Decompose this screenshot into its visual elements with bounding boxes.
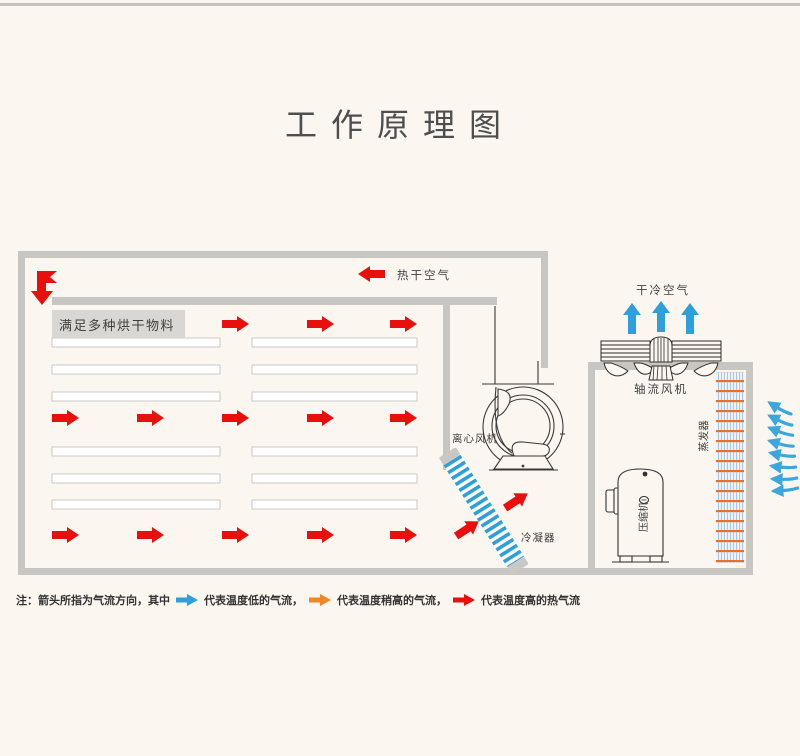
legend-note: 注：箭头所指为气流方向，其中	[16, 592, 170, 608]
hot-airflow-arrow-icon	[137, 410, 164, 426]
tray	[52, 365, 220, 374]
hot-airflow-arrow-icon	[222, 410, 249, 426]
cold-air-up-arrows	[623, 301, 699, 334]
wall-bottom	[18, 568, 753, 575]
intake-air-arrow-icon	[773, 469, 797, 489]
legend-hot-arrow-icon	[452, 594, 476, 606]
legend-cold-label: 代表温度低的气流，	[204, 592, 303, 608]
legend: 注：箭头所指为气流方向，其中 代表温度低的气流， 代表温度稍高的气流， 代表温度…	[16, 592, 580, 608]
tray	[252, 447, 417, 456]
hot-airflow-arrow-icon	[52, 410, 79, 426]
intake-air-arrow-icon	[772, 457, 796, 476]
schematic-page: 工作原理图	[0, 0, 800, 756]
tray	[52, 474, 220, 483]
tray	[52, 447, 220, 456]
wall-inner-vertical	[443, 297, 450, 470]
intake-air-arrow-icon	[770, 414, 792, 427]
wall-step-right	[541, 251, 548, 368]
tray	[252, 338, 417, 347]
tray	[52, 392, 220, 401]
hot-airflow-arrow-icon	[307, 527, 334, 543]
tray	[52, 500, 220, 509]
intake-air-arrow-icon	[774, 479, 798, 500]
hot-dry-air-label: 热干空气	[397, 268, 451, 282]
evaporator-coil	[716, 372, 744, 563]
centrifugal-fan-drawing	[482, 306, 565, 470]
dry-cold-air-label: 干冷空气	[636, 283, 690, 297]
tray	[252, 474, 417, 483]
condenser-label: 冷凝器	[521, 531, 556, 544]
legend-hot-label: 代表温度高的热气流	[481, 592, 580, 608]
cold-air-up-arrow-icon	[623, 303, 641, 334]
intake-air-arrow-icon	[770, 424, 793, 438]
tray	[252, 392, 417, 401]
condenser-outflow-arrow-icon	[501, 487, 532, 515]
wall-top	[18, 251, 548, 258]
axial-fan-drawing	[601, 337, 721, 380]
tray	[252, 365, 417, 374]
hot-dry-air-arrow-icon	[358, 266, 385, 282]
hot-airflow-arrow-icon	[390, 316, 417, 332]
intake-air-arrow-icon	[770, 403, 791, 414]
hot-airflow-arrow-icon	[307, 410, 334, 426]
axial-fan-label: 轴流风机	[634, 382, 688, 396]
tray	[252, 500, 417, 509]
legend-cold-arrow-icon	[175, 594, 199, 606]
hot-airflow-arrow-icon	[222, 316, 249, 332]
compressor-label: 压缩机	[637, 502, 650, 532]
hot-airflow-arrow-icon	[137, 527, 164, 543]
hot-airflow-arrow-icon	[52, 527, 79, 543]
wall-machineroom-right	[746, 362, 753, 568]
evaporator-label: 蒸发器	[697, 420, 710, 452]
intake-air-curved-arrows	[770, 403, 798, 500]
working-principle-diagram: 满足多种烘干物料 热干空气	[0, 0, 800, 756]
wall-machineroom-left	[588, 362, 595, 568]
wall-left	[18, 251, 25, 575]
legend-warm-arrow-icon	[308, 594, 332, 606]
compressor-drawing	[606, 469, 669, 562]
cold-air-up-arrow-icon	[681, 303, 699, 334]
hot-airflow-arrow-icon	[222, 527, 249, 543]
hot-airflow-arrow-icon	[390, 527, 417, 543]
centrifugal-fan-label: 离心风机	[452, 432, 498, 445]
cold-air-up-arrow-icon	[652, 301, 670, 332]
tray	[52, 338, 220, 347]
wall-inner-partition	[52, 297, 497, 305]
hot-airflow-arrow-icon	[390, 410, 417, 426]
intake-air-arrow-icon	[770, 436, 793, 452]
legend-warm-label: 代表温度稍高的气流，	[337, 592, 447, 608]
intake-air-arrow-icon	[771, 446, 794, 464]
drying-trays	[52, 338, 417, 509]
hot-airflow-arrow-icon	[307, 316, 334, 332]
condenser-stripes	[444, 455, 525, 567]
materials-shelf-label: 满足多种烘干物料	[59, 318, 175, 333]
